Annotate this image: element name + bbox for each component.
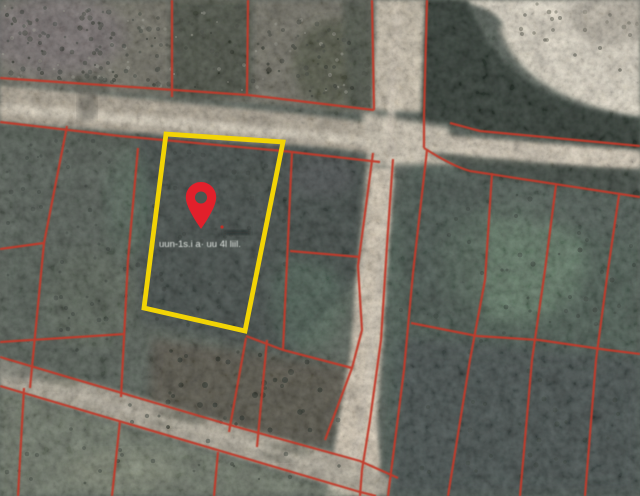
svg-text:uun-1s.i a· uu 4l liil.: uun-1s.i a· uu 4l liil.: [159, 239, 241, 250]
